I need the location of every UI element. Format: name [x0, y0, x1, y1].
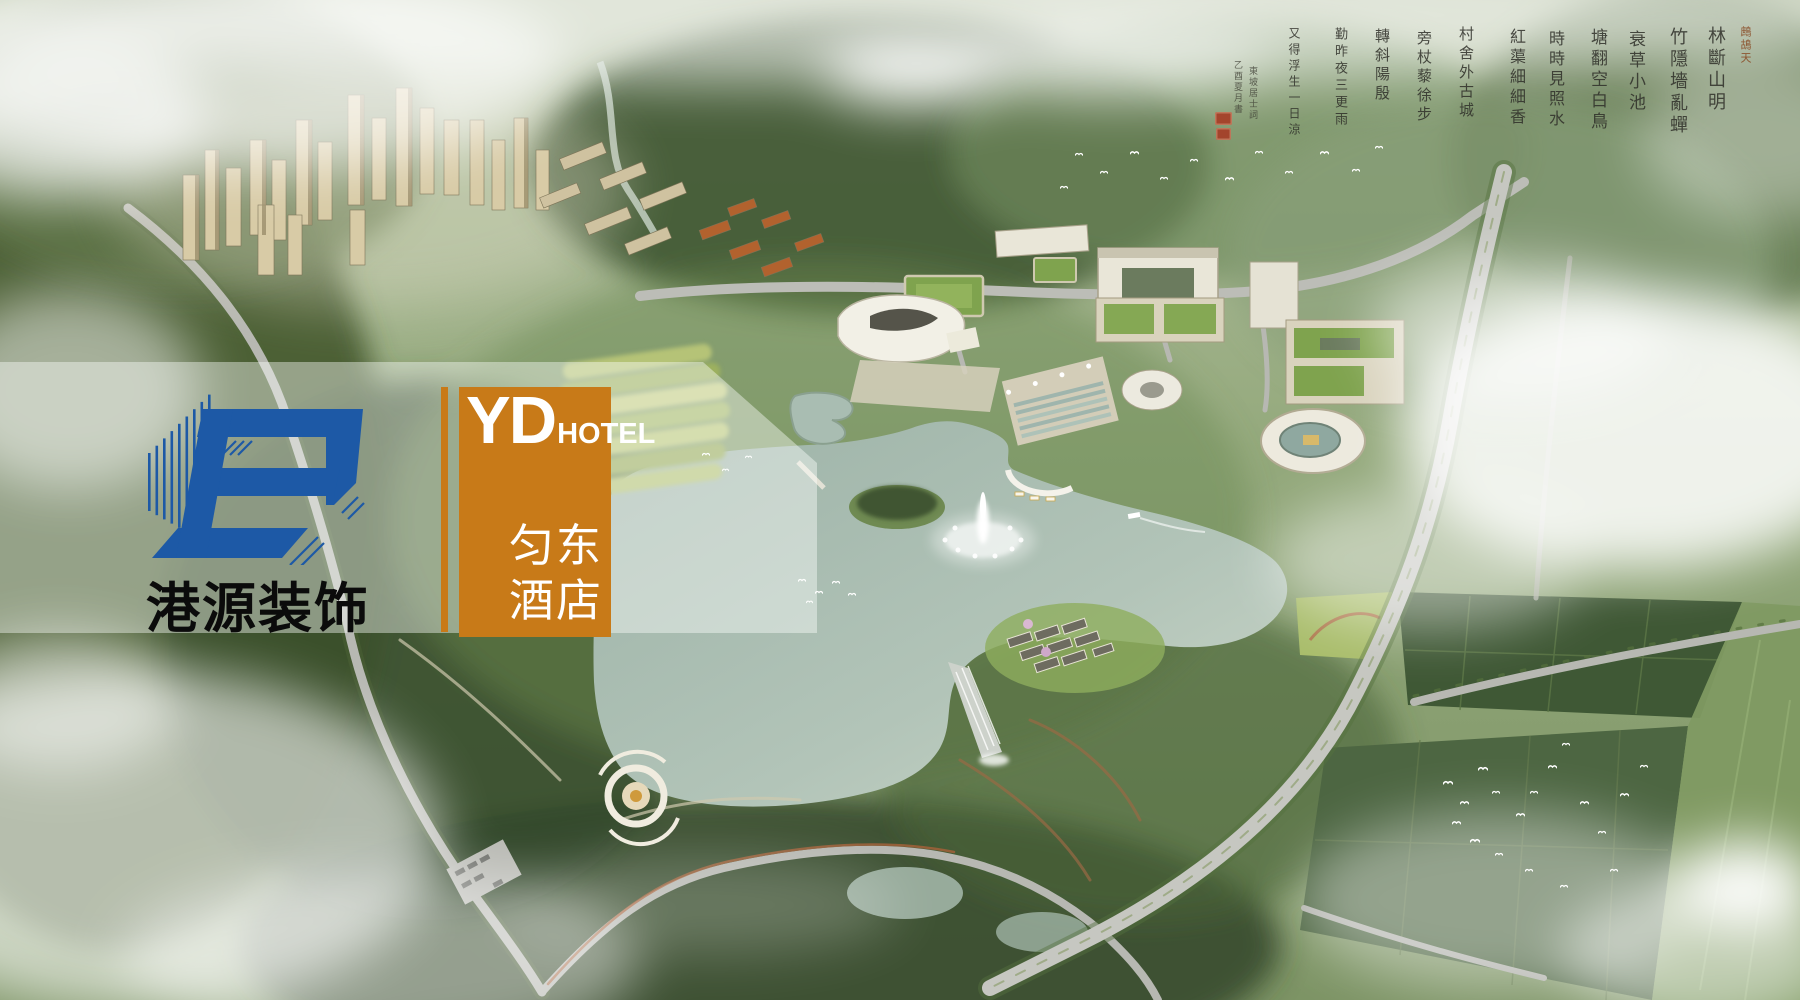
calligraphy-column: 衰草小池: [1623, 30, 1648, 114]
hotel-name-line2: 酒店: [509, 574, 603, 629]
calligraphy-column: 塘翻空白鳥: [1585, 28, 1610, 133]
calligraphy-column: 村舍外古城: [1456, 26, 1477, 121]
calligraphy-column: 紅蕖細細香: [1504, 28, 1528, 128]
poem-title-seal: 鷓鴣天: [1737, 26, 1753, 65]
hotel-name-line1: 匀东: [509, 519, 603, 574]
signature-column: 東坡居士詞: [1246, 66, 1259, 121]
hotel-badge: YD HOTEL 匀东 酒店: [459, 387, 611, 637]
calligraphy-column: 勤昨夜三更雨: [1330, 27, 1349, 129]
seal-stamp-icon: [1215, 112, 1232, 125]
calligraphy-column: 轉斜陽殷: [1372, 28, 1393, 104]
hotel-initials: YD: [466, 387, 555, 454]
divider-bar: [441, 387, 448, 632]
calligraphy-column: 林斷山明: [1702, 26, 1728, 114]
calligraphy-column: 旁杖藜徐步: [1414, 30, 1435, 125]
seal-stamp-icon: [1216, 128, 1231, 140]
calligraphy-column: 竹隱墻亂蟬: [1664, 27, 1690, 137]
calligraphy-column: 時時見照水: [1543, 30, 1567, 130]
oval-ring-building: [1261, 409, 1365, 473]
hotel-word: HOTEL: [557, 418, 655, 451]
company-logo: [138, 385, 378, 565]
kidney-pond: [790, 393, 852, 444]
calligraphy-column: 又得浮生一日涼: [1286, 27, 1303, 139]
gangyuan-logo-icon: [138, 385, 378, 565]
signature-column: 乙酉夏月書: [1231, 60, 1244, 115]
